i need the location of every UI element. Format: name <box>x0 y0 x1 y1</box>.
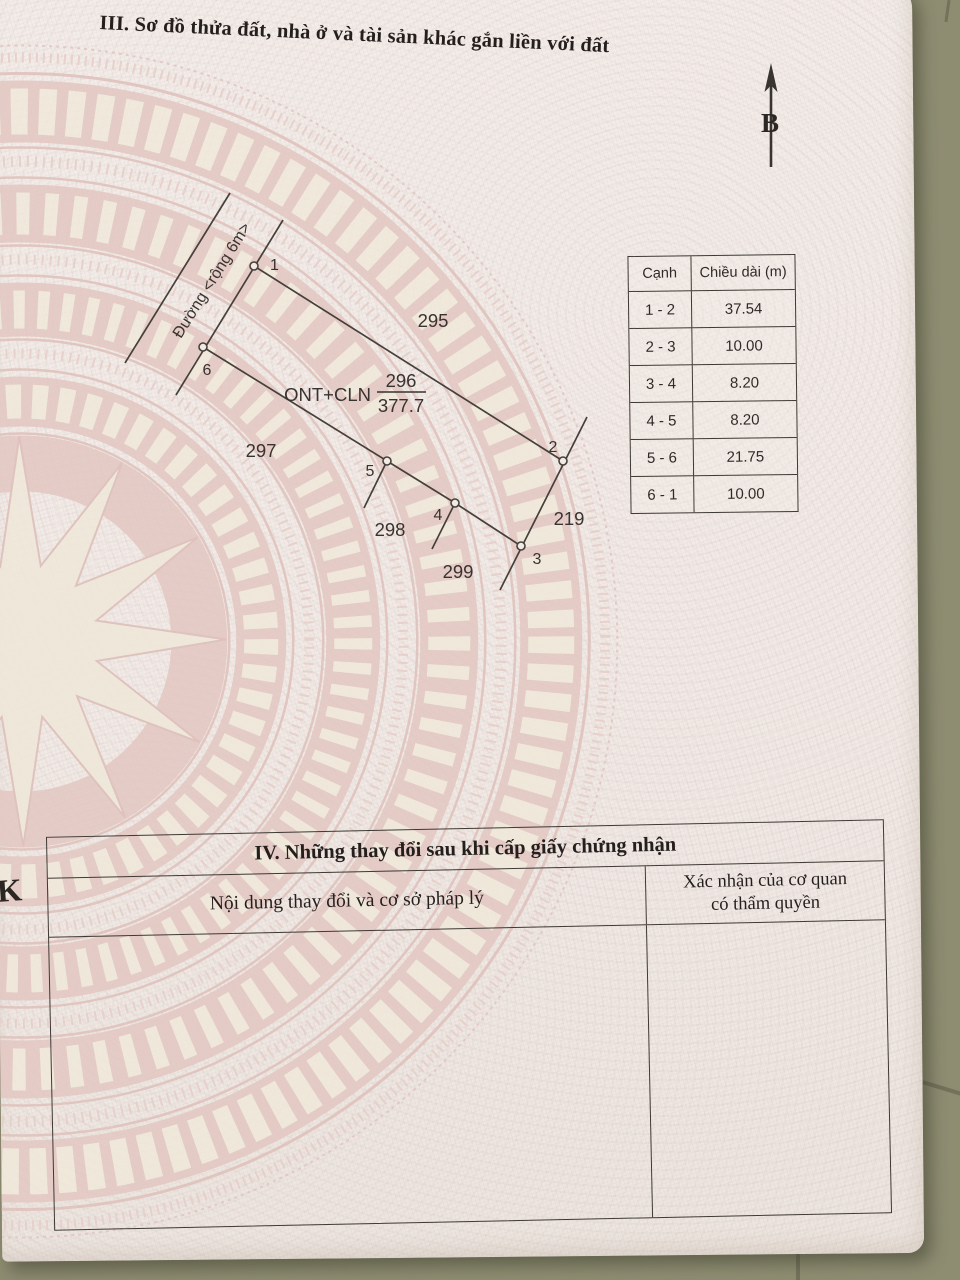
adjacent-parcel-295: 295 <box>418 310 449 331</box>
parcel-number: 296 <box>386 370 417 391</box>
adjacent-parcel-299: 299 <box>443 561 474 582</box>
section4-body-left-cell <box>49 925 653 1229</box>
edge-table-header-edge: Cạnh <box>628 256 691 292</box>
edge-cell: 3 - 4 <box>630 365 693 403</box>
length-cell: 37.54 <box>692 290 795 328</box>
edge-4-5 <box>387 461 455 503</box>
vertex-label-5: 5 <box>366 463 375 480</box>
length-cell: 10.00 <box>692 327 795 365</box>
margin-mark: K <box>0 871 23 910</box>
vertex-5 <box>383 457 391 465</box>
vertex-label-2: 2 <box>549 439 558 456</box>
length-cell: 8.20 <box>693 401 796 439</box>
table-row: 1 - 2 37.54 <box>629 290 795 329</box>
edge-cell: 5 - 6 <box>631 439 694 477</box>
length-cell: 21.75 <box>694 438 797 476</box>
table-row: 3 - 4 8.20 <box>630 364 796 403</box>
vertex-3 <box>517 542 525 550</box>
edge-table-header-length: Chiều dài (m) <box>691 255 794 291</box>
vertex-1 <box>250 262 258 270</box>
vertex-6 <box>199 343 207 351</box>
adjacent-parcel-298: 298 <box>375 519 406 540</box>
edge-length-table: Cạnh Chiều dài (m) 1 - 2 37.54 2 - 3 10.… <box>627 254 798 514</box>
section4-col2-line1: Xác nhận của cơ quan <box>683 868 847 895</box>
photo-of-land-certificate: III. Sơ đồ thửa đất, nhà ở và tài sản kh… <box>0 0 960 1280</box>
edge-cell: 4 - 5 <box>630 402 693 440</box>
table-row: 6 - 1 10.00 <box>631 475 797 513</box>
edge-cell: 2 - 3 <box>629 328 692 366</box>
section4-body-right-cell <box>647 920 891 1217</box>
vertex-4 <box>451 499 459 507</box>
section4-col2-header: Xác nhận của cơ quan có thẩm quyền <box>646 861 885 924</box>
length-cell: 8.20 <box>693 364 796 402</box>
vertex-label-1: 1 <box>270 257 279 274</box>
section4-col2-line2: có thẩm quyền <box>711 892 820 917</box>
parcel-area: 377.7 <box>378 395 424 416</box>
vertex-2 <box>559 457 567 465</box>
edge-cell: 6 - 1 <box>631 476 694 513</box>
north-arrow-icon: B <box>761 63 779 167</box>
table-row: 5 - 6 21.75 <box>631 438 797 477</box>
parcel-annotation: ONT+CLN 296 377.7 <box>284 370 426 416</box>
table-row: 4 - 5 8.20 <box>630 401 796 440</box>
vertex-label-6: 6 <box>203 362 212 379</box>
table-row: 2 - 3 10.00 <box>629 327 795 366</box>
edge-1-2 <box>254 266 563 461</box>
adjacent-parcel-297: 297 <box>246 440 277 461</box>
adjacent-parcel-219: 219 <box>554 508 585 529</box>
vertex-label-4: 4 <box>434 507 443 524</box>
length-cell: 10.00 <box>694 475 797 512</box>
boundary-line-2-3 <box>500 417 587 590</box>
north-label: B <box>761 108 779 138</box>
road-label: Đường <rộng 6m> <box>170 220 255 341</box>
section4-table: IV. Những thay đổi sau khi cấp giấy chứn… <box>46 819 892 1230</box>
edge-3-4 <box>455 503 521 546</box>
vertex-label-3: 3 <box>533 551 542 568</box>
edge-cell: 1 - 2 <box>629 291 692 329</box>
land-use-label: ONT+CLN <box>284 384 371 405</box>
